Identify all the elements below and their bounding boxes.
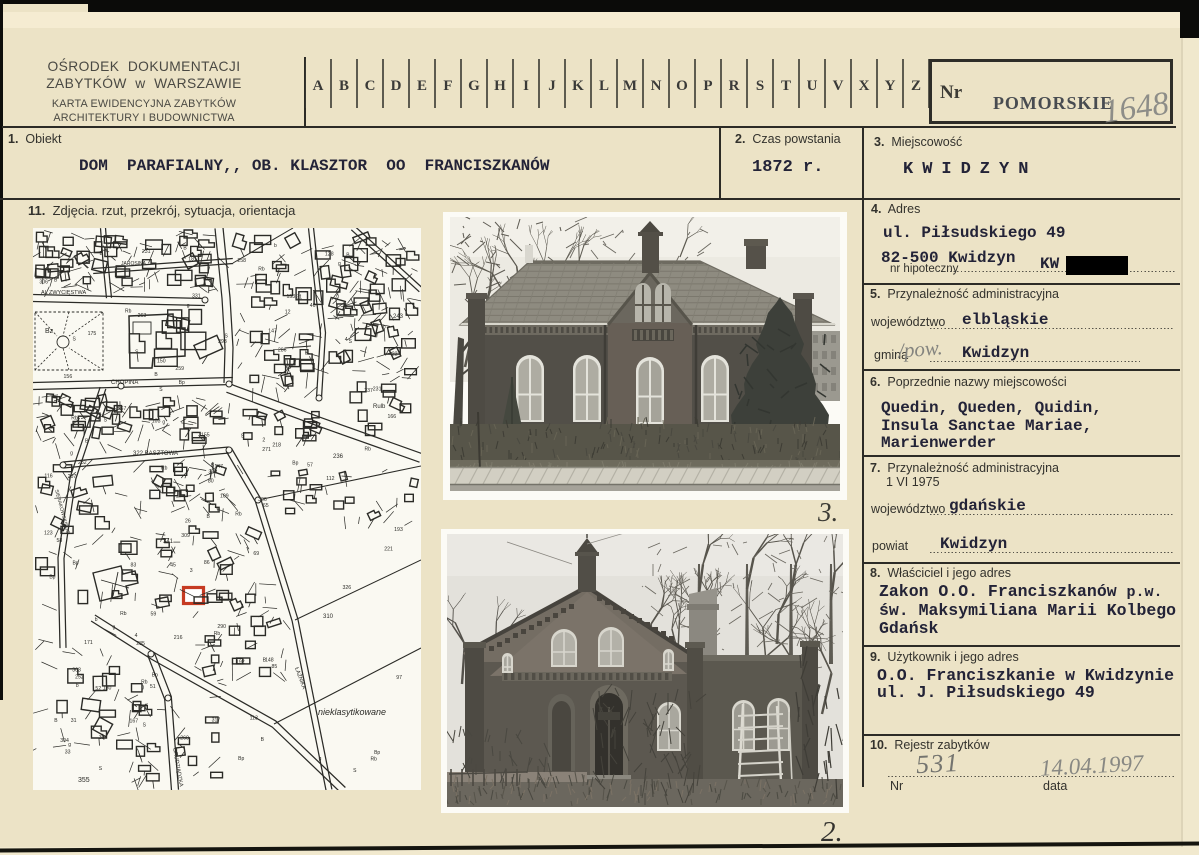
svg-text:33: 33 — [65, 750, 71, 756]
svg-text:59: 59 — [150, 611, 156, 617]
svg-text:b: b — [383, 325, 386, 331]
svg-text:317: 317 — [212, 718, 221, 724]
svg-text:P: P — [703, 78, 712, 94]
svg-text:V: V — [833, 78, 844, 94]
svg-text:g: g — [113, 625, 116, 631]
svg-text:b: b — [76, 683, 79, 689]
svg-text:Z: Z — [911, 78, 921, 94]
svg-text:155: 155 — [201, 432, 210, 438]
svg-text:Rb: Rb — [71, 415, 78, 421]
svg-text:252: 252 — [75, 675, 84, 681]
svg-text:Bp: Bp — [152, 672, 158, 678]
svg-text:S: S — [756, 78, 764, 94]
svg-text:Rb: Rb — [235, 511, 242, 517]
svg-text:218: 218 — [272, 442, 281, 448]
svg-text:Bp: Bp — [72, 561, 78, 567]
svg-text:g: g — [217, 507, 220, 513]
svg-text:260: 260 — [180, 735, 189, 741]
svg-text:Rb: Rb — [371, 756, 378, 762]
svg-text:336: 336 — [208, 470, 217, 476]
svg-text:12: 12 — [285, 309, 291, 315]
svg-text:109: 109 — [220, 493, 229, 499]
svg-text:231: 231 — [373, 387, 382, 393]
svg-text:L: L — [599, 78, 609, 94]
svg-text:b: b — [274, 243, 277, 249]
svg-text:355: 355 — [78, 777, 90, 784]
svg-text:2: 2 — [262, 438, 265, 444]
svg-text:303: 303 — [72, 667, 81, 673]
svg-text:g: g — [319, 756, 322, 762]
svg-text:Rb: Rb — [161, 466, 168, 472]
svg-text:3: 3 — [190, 568, 193, 574]
svg-text:Bp: Bp — [292, 460, 298, 466]
svg-text:D: D — [391, 78, 402, 94]
svg-text:E: E — [417, 78, 427, 94]
svg-text:51: 51 — [150, 684, 156, 690]
svg-text:193: 193 — [394, 527, 403, 533]
svg-text:G: G — [468, 78, 480, 94]
svg-text:45: 45 — [170, 562, 176, 568]
svg-text:271: 271 — [262, 447, 271, 453]
svg-text:216: 216 — [174, 635, 183, 641]
svg-text:103: 103 — [152, 419, 161, 425]
svg-text:221: 221 — [384, 546, 393, 552]
svg-text:192: 192 — [236, 660, 245, 666]
svg-text:290: 290 — [217, 624, 226, 630]
svg-text:F: F — [443, 78, 452, 94]
svg-text:116: 116 — [44, 474, 52, 480]
svg-text:AL ZWYCIĘSTWA: AL ZWYCIĘSTWA — [41, 290, 86, 296]
svg-text:306: 306 — [39, 280, 48, 286]
svg-text:K: K — [572, 78, 584, 94]
svg-text:331: 331 — [192, 294, 201, 300]
svg-text:T: T — [781, 78, 791, 94]
svg-text:Rb: Rb — [120, 611, 127, 617]
svg-text:X: X — [859, 78, 870, 94]
svg-text:236: 236 — [333, 454, 344, 460]
svg-text:86: 86 — [204, 560, 210, 566]
svg-text:341: 341 — [163, 539, 174, 545]
svg-text:Y: Y — [885, 78, 896, 94]
svg-text:52: 52 — [95, 686, 101, 692]
svg-text:130: 130 — [103, 685, 112, 691]
svg-text:Rulb: Rulb — [373, 404, 386, 410]
svg-text:263: 263 — [138, 313, 147, 319]
svg-text:326: 326 — [342, 585, 351, 591]
svg-text:322 BASZTOWA: 322 BASZTOWA — [133, 451, 178, 457]
svg-text:181: 181 — [188, 257, 197, 263]
svg-text:g: g — [70, 451, 73, 457]
svg-text:83: 83 — [130, 562, 136, 568]
svg-text:153: 153 — [286, 294, 295, 300]
svg-text:69: 69 — [253, 551, 259, 557]
svg-text:Rb: Rb — [364, 447, 371, 453]
svg-text:259: 259 — [175, 366, 184, 372]
svg-text:46: 46 — [310, 303, 316, 309]
svg-text:R: R — [729, 78, 740, 94]
svg-text:H: H — [494, 78, 506, 94]
svg-text:285: 285 — [136, 641, 145, 647]
svg-text:B: B — [339, 78, 349, 94]
svg-text:4: 4 — [345, 337, 348, 343]
svg-text:171: 171 — [84, 640, 93, 646]
svg-text:310: 310 — [323, 614, 334, 620]
svg-text:Rb: Rb — [125, 309, 132, 315]
svg-text:g: g — [187, 303, 190, 309]
svg-text:166: 166 — [387, 414, 396, 420]
svg-text:g: g — [338, 261, 341, 267]
svg-text:Rb: Rb — [214, 631, 221, 637]
svg-text:128: 128 — [325, 252, 334, 258]
svg-text:167: 167 — [129, 719, 138, 725]
svg-text:C: C — [365, 78, 376, 94]
svg-text:237: 237 — [364, 388, 373, 394]
svg-text:4: 4 — [135, 633, 138, 639]
svg-text:31: 31 — [71, 718, 77, 724]
svg-text:b: b — [95, 617, 98, 623]
svg-text:g: g — [141, 684, 144, 690]
svg-text:85: 85 — [272, 664, 278, 670]
svg-text:113: 113 — [250, 716, 258, 722]
svg-text:g: g — [162, 420, 165, 426]
svg-text:I: I — [523, 78, 529, 94]
svg-text:175: 175 — [88, 331, 97, 337]
svg-text:80: 80 — [208, 478, 214, 484]
svg-text:258: 258 — [237, 258, 246, 264]
svg-text:Bz: Bz — [45, 328, 54, 335]
svg-text:58: 58 — [57, 538, 63, 544]
svg-text:243: 243 — [393, 314, 404, 320]
svg-text:22: 22 — [392, 351, 398, 357]
svg-text:57: 57 — [307, 463, 313, 469]
svg-text:Bp: Bp — [238, 756, 244, 762]
svg-text:123: 123 — [44, 531, 53, 537]
svg-text:156: 156 — [64, 374, 73, 380]
svg-text:A: A — [313, 78, 324, 94]
svg-text:309: 309 — [181, 533, 190, 539]
svg-text:g: g — [68, 742, 71, 748]
svg-text:147: 147 — [268, 328, 277, 334]
svg-text:O: O — [676, 78, 688, 94]
svg-text:207: 207 — [68, 474, 77, 480]
svg-text:150: 150 — [157, 358, 166, 364]
svg-text:97: 97 — [396, 675, 402, 681]
svg-text:38: 38 — [99, 735, 105, 741]
svg-text:M: M — [623, 78, 637, 94]
svg-text:CHOPINA: CHOPINA — [111, 380, 138, 386]
svg-text:Bp: Bp — [179, 380, 185, 386]
svg-text:U: U — [807, 78, 818, 94]
svg-text:31: 31 — [296, 295, 302, 301]
svg-text:JAROSINA: JAROSINA — [121, 261, 147, 267]
svg-text:65: 65 — [263, 503, 269, 509]
svg-text:Bp: Bp — [374, 750, 380, 756]
svg-text:N: N — [651, 78, 662, 94]
svg-text:b: b — [305, 350, 308, 356]
svg-text:Bp: Bp — [49, 575, 55, 581]
svg-text:Rb: Rb — [258, 266, 265, 272]
svg-text:148: 148 — [265, 658, 274, 664]
svg-text:232: 232 — [78, 460, 87, 466]
svg-text:231: 231 — [142, 249, 151, 255]
svg-text:g: g — [336, 293, 339, 299]
svg-text:112: 112 — [326, 476, 334, 482]
svg-text:26: 26 — [185, 518, 191, 524]
svg-text:286: 286 — [278, 347, 287, 353]
svg-text:293: 293 — [218, 339, 227, 345]
svg-text:267: 267 — [118, 406, 127, 412]
svg-text:nieklasytikowane: nieklasytikowane — [318, 707, 386, 717]
svg-text:J: J — [548, 78, 556, 94]
